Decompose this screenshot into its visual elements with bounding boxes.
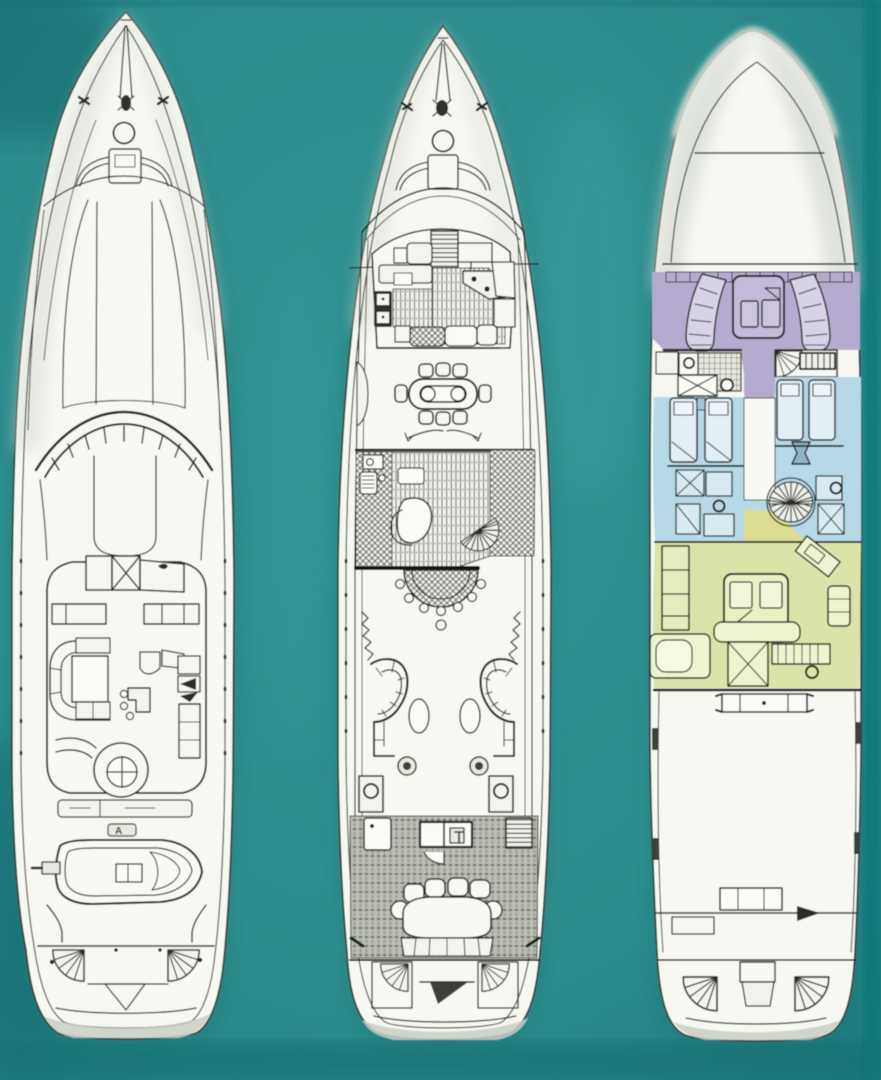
svg-text:A: A [115,826,122,837]
